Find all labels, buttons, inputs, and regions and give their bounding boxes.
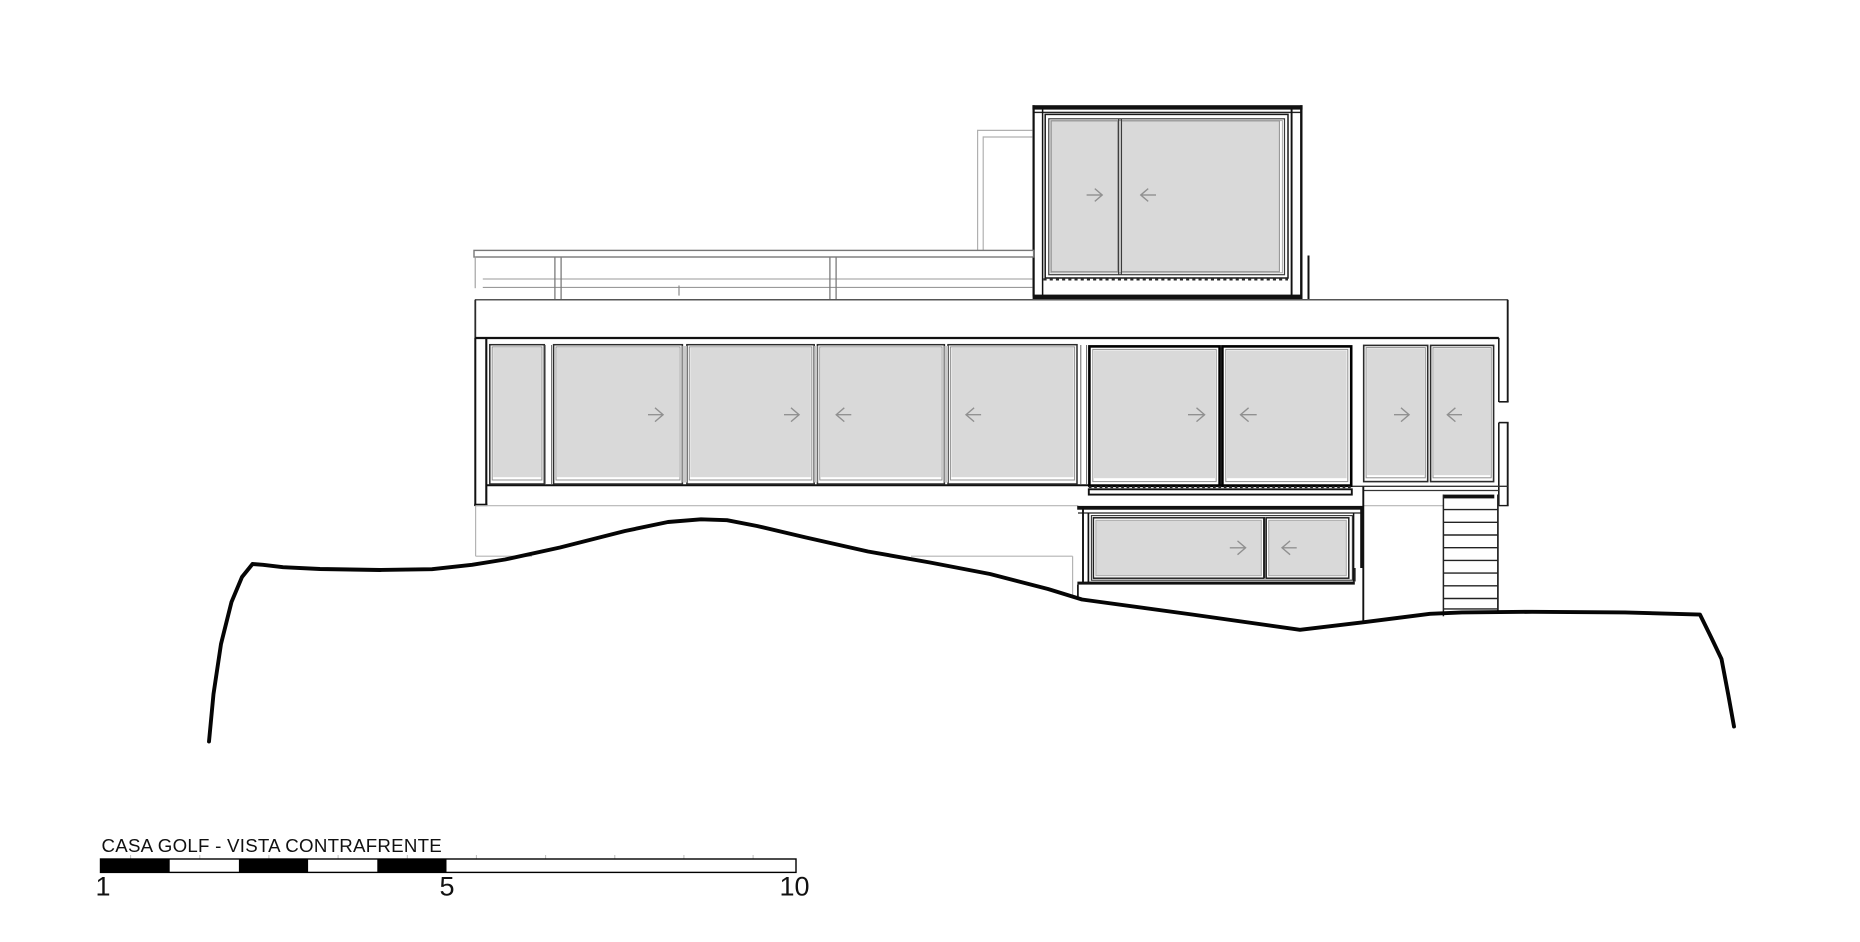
svg-text:5: 5 <box>440 872 455 902</box>
svg-text:10: 10 <box>780 872 810 902</box>
svg-text:CASA GOLF - VISTA CONTRAFRENTE: CASA GOLF - VISTA CONTRAFRENTE <box>102 835 442 856</box>
svg-text:1: 1 <box>96 872 111 902</box>
